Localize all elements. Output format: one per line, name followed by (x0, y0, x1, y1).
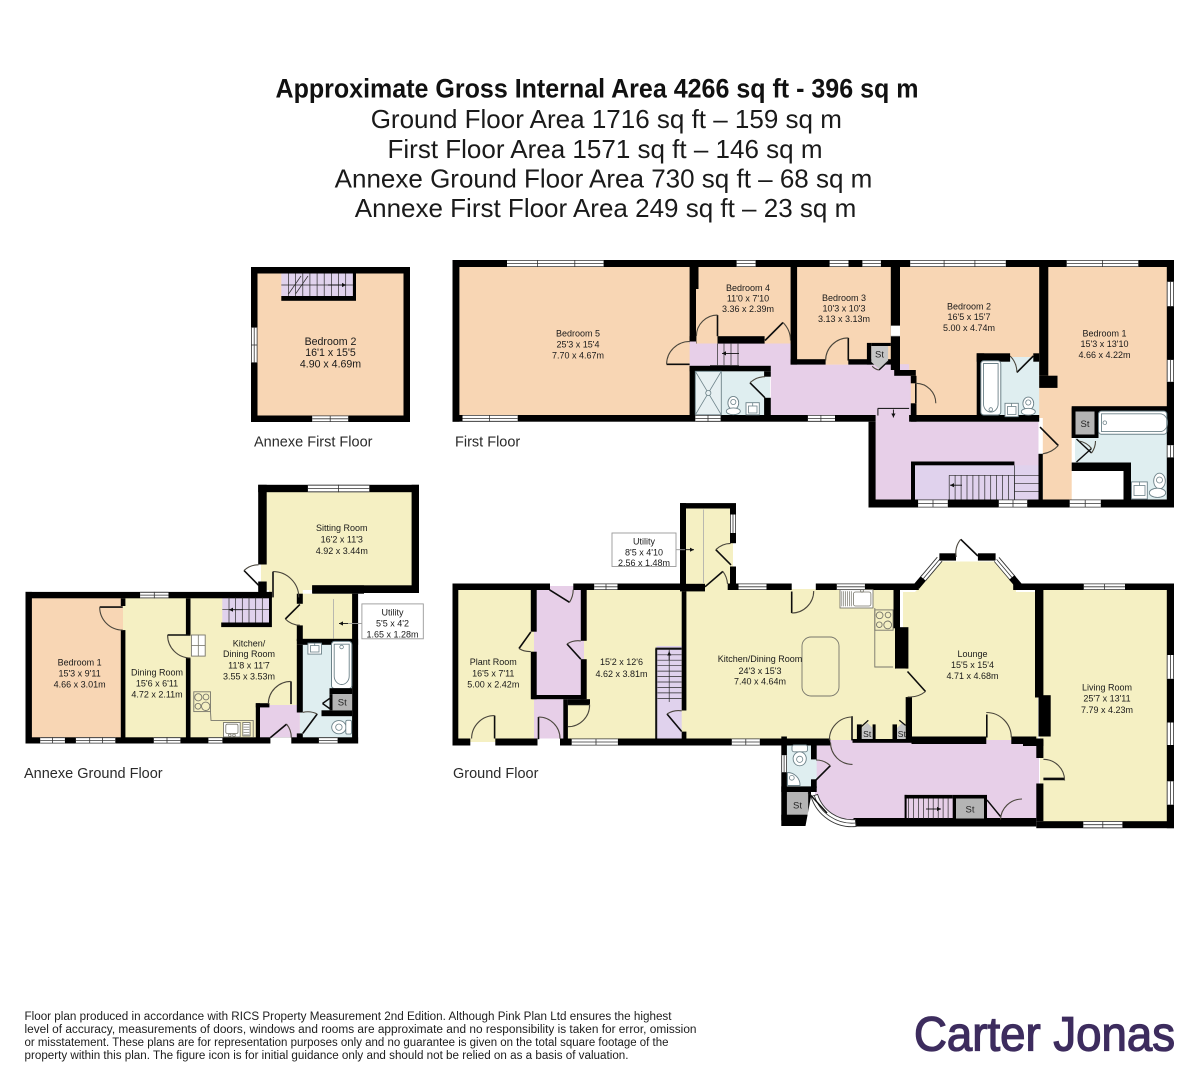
svg-text:5'5 x 4'2: 5'5 x 4'2 (376, 619, 409, 629)
svg-text:16'5 x 15'7: 16'5 x 15'7 (948, 312, 991, 322)
svg-text:15'3 x 13'10: 15'3 x 13'10 (1081, 339, 1129, 349)
svg-text:St: St (966, 805, 975, 816)
svg-text:4.62 x 3.81m: 4.62 x 3.81m (595, 669, 647, 679)
svg-text:St: St (898, 729, 907, 739)
svg-text:Living Room: Living Room (1082, 682, 1132, 692)
svg-text:Floor plan produced in accorda: Floor plan produced in accordance with R… (25, 1011, 673, 1023)
svg-text:Dining Room: Dining Room (131, 668, 183, 678)
svg-text:Utility: Utility (633, 537, 655, 547)
svg-text:25'3 x 15'4: 25'3 x 15'4 (557, 340, 600, 350)
svg-text:15'5 x 15'4: 15'5 x 15'4 (951, 660, 994, 670)
svg-text:St: St (1081, 419, 1090, 430)
svg-text:Bedroom 3: Bedroom 3 (822, 293, 866, 303)
svg-text:Plant Room: Plant Room (470, 657, 517, 667)
svg-text:Approximate Gross Internal Are: Approximate Gross Internal Area 4266 sq … (276, 74, 919, 104)
svg-text:Carter Jonas: Carter Jonas (914, 1009, 1175, 1062)
svg-text:5.00 x 2.42m: 5.00 x 2.42m (467, 679, 519, 689)
svg-text:8'5 x 4'10: 8'5 x 4'10 (625, 548, 663, 558)
svg-text:5.00 x 4.74m: 5.00 x 4.74m (943, 323, 995, 333)
svg-text:or misstatement. These plans a: or misstatement. These plans are for rep… (25, 1037, 669, 1049)
svg-text:16'2 x 11'3: 16'2 x 11'3 (321, 535, 363, 545)
svg-text:4.66 x 3.01m: 4.66 x 3.01m (54, 680, 106, 690)
svg-text:24'3 x 15'3: 24'3 x 15'3 (739, 666, 782, 676)
svg-text:Bedroom 2: Bedroom 2 (947, 302, 991, 312)
svg-text:7.40 x 4.64m: 7.40 x 4.64m (734, 676, 786, 686)
svg-text:Ground Floor: Ground Floor (453, 766, 539, 782)
svg-text:Sitting Room: Sitting Room (316, 523, 368, 533)
svg-text:Lounge: Lounge (957, 649, 987, 659)
svg-text:St: St (875, 350, 884, 361)
svg-text:25'7 x 13'11: 25'7 x 13'11 (1083, 694, 1130, 704)
svg-text:4.90 x 4.69m: 4.90 x 4.69m (300, 358, 361, 370)
svg-text:10'3 x 10'3: 10'3 x 10'3 (823, 304, 866, 314)
svg-text:First Floor Area 1571 sq ft –: First Floor Area 1571 sq ft – 146 sq m (388, 134, 823, 164)
svg-text:Kitchen/: Kitchen/ (233, 639, 266, 649)
svg-text:Annexe Ground Floor Area 730 s: Annexe Ground Floor Area 730 sq ft – 68 … (335, 164, 873, 194)
svg-text:Bedroom 1: Bedroom 1 (1082, 329, 1126, 339)
svg-text:Kitchen/Dining Room: Kitchen/Dining Room (718, 654, 803, 664)
svg-text:7.70 x 4.67m: 7.70 x 4.67m (552, 351, 604, 361)
svg-text:3.13 x 3.13m: 3.13 x 3.13m (818, 314, 870, 324)
svg-text:level of accuracy, measurement: level of accuracy, measurements of doors… (25, 1024, 697, 1036)
svg-text:11'8 x 11'7: 11'8 x 11'7 (228, 661, 270, 671)
svg-text:3.55 x 3.53m: 3.55 x 3.53m (223, 671, 275, 681)
svg-text:St: St (793, 801, 802, 812)
svg-text:Bedroom 1: Bedroom 1 (58, 658, 102, 668)
svg-text:Bedroom 5: Bedroom 5 (556, 329, 600, 339)
svg-text:Bedroom 4: Bedroom 4 (726, 283, 770, 293)
svg-text:4.71 x 4.68m: 4.71 x 4.68m (946, 671, 998, 681)
svg-text:15'6 x 6'11: 15'6 x 6'11 (136, 679, 178, 689)
svg-text:15'2 x 12'6: 15'2 x 12'6 (600, 657, 643, 667)
svg-text:11'0 x 7'10: 11'0 x 7'10 (727, 294, 769, 304)
svg-text:Annexe First Floor: Annexe First Floor (254, 435, 373, 451)
svg-text:Ground Floor Area 1716 sq ft –: Ground Floor Area 1716 sq ft – 159 sq m (371, 104, 842, 134)
svg-text:St: St (863, 729, 872, 739)
svg-text:property within this plan. The: property within this plan. The figure ic… (25, 1050, 629, 1062)
svg-text:Annexe Ground Floor: Annexe Ground Floor (24, 766, 163, 782)
svg-text:1.65 x 1.28m: 1.65 x 1.28m (366, 630, 418, 640)
svg-text:2.56 x 1.48m: 2.56 x 1.48m (618, 558, 670, 568)
svg-text:Annexe First Floor Area 249 sq: Annexe First Floor Area 249 sq ft – 23 s… (355, 193, 856, 223)
svg-text:4.66 x 4.22m: 4.66 x 4.22m (1078, 350, 1130, 360)
svg-text:Dining Room: Dining Room (223, 649, 275, 659)
svg-text:7.79 x 4.23m: 7.79 x 4.23m (1081, 705, 1133, 715)
svg-text:15'3 x 9'11: 15'3 x 9'11 (58, 669, 100, 679)
svg-text:St: St (338, 698, 347, 709)
svg-text:16'5 x 7'11: 16'5 x 7'11 (472, 669, 514, 679)
svg-text:3.36 x 2.39m: 3.36 x 2.39m (722, 304, 774, 314)
svg-text:Utility: Utility (382, 608, 404, 618)
svg-text:4.72 x 2.11m: 4.72 x 2.11m (131, 690, 182, 700)
svg-text:First Floor: First Floor (455, 435, 520, 451)
svg-text:16'1 x 15'5: 16'1 x 15'5 (305, 347, 356, 359)
svg-text:4.92 x 3.44m: 4.92 x 3.44m (316, 546, 368, 556)
